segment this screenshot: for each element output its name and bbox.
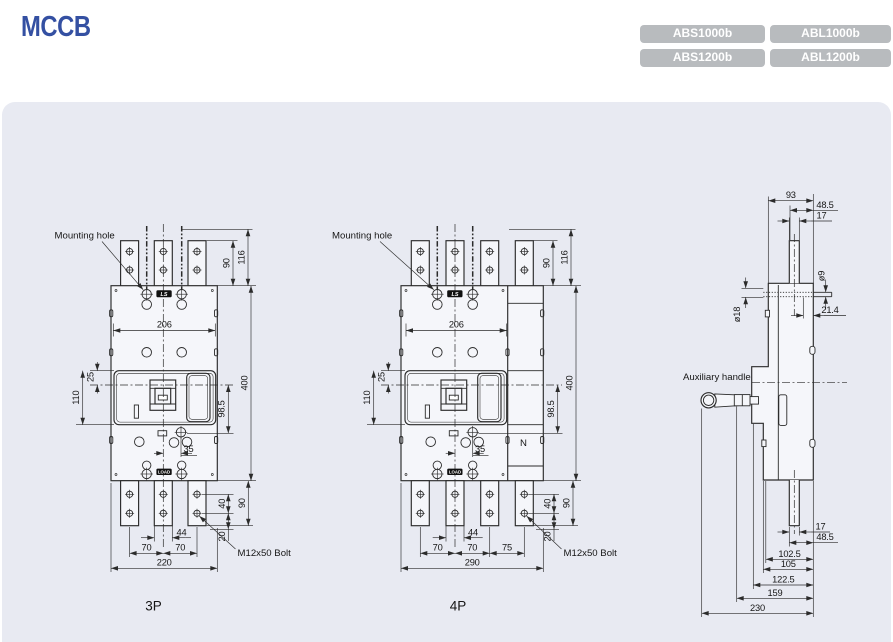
load-badge-3p: LOAD (156, 469, 171, 475)
neutral-label: N (520, 438, 527, 449)
dim-35-3p: 35 (184, 444, 194, 454)
brand-label-3p: LS (161, 292, 168, 298)
breaker-body-side (752, 283, 814, 480)
dim-35-4p: 35 (475, 444, 485, 454)
dim-206-4p: 206 (449, 319, 464, 329)
front-3p-drawing: LS LOAD 206 90 116 400 25 (55, 224, 292, 614)
terminal-bar-top (789, 241, 799, 284)
dim-206-3p: 206 (157, 319, 172, 329)
terminals-bottom-3p (121, 481, 206, 526)
dim-400-4p: 400 (565, 376, 575, 391)
side-view-drawing: Auxiliary handle 93 48.5 17 ø9 ø18 (683, 190, 847, 617)
dim-159-side: 159 (768, 588, 783, 598)
dim-70a-4p: 70 (433, 543, 443, 553)
dim-25-4p: 25 (377, 372, 387, 382)
dimension-drawings: LS LOAD 206 90 116 400 25 (0, 0, 893, 642)
dim-90-top-4p: 90 (542, 258, 552, 268)
dim-98-3p: 98.5 (217, 400, 227, 417)
dim-17-top-side: 17 (817, 211, 827, 221)
brand-badge-4p: LS (447, 290, 462, 298)
dim-220-3p: 220 (157, 558, 172, 568)
load-badge-4p: LOAD (447, 469, 462, 475)
dim-93-side: 93 (786, 190, 796, 200)
dim-116-3p: 116 (237, 250, 247, 264)
handle-panel-4p (405, 371, 507, 425)
handle-panel-3p (114, 371, 216, 425)
dim-122-side: 122.5 (772, 575, 794, 585)
dim-17-bottom-side: 17 (816, 522, 826, 532)
caption-4p: 4P (450, 599, 467, 614)
dim-105-side: 105 (781, 559, 796, 569)
dim-98-4p: 98.5 (546, 400, 556, 417)
caption-3p: 3P (145, 599, 162, 614)
bolt-label-3p: M12x50 Bolt (238, 548, 292, 559)
dim-44-3p: 44 (177, 527, 187, 537)
bolt-label-4p: M12x50 Bolt (564, 548, 618, 559)
dim-40-4p: 40 (543, 499, 553, 509)
dim-40-3p: 40 (217, 499, 227, 509)
mounting-hole-label-4p: Mounting hole (332, 231, 392, 242)
front-4p-drawing: N (332, 224, 617, 614)
dim-110-3p: 110 (71, 391, 81, 405)
load-label-4p: LOAD (449, 470, 461, 475)
auxiliary-handle-label: Auxiliary handle (683, 372, 751, 383)
dim-230-side: 230 (750, 603, 765, 613)
brand-badge-3p: LS (156, 290, 171, 298)
dim-102-side: 102.5 (778, 549, 800, 559)
dim-400-3p: 400 (240, 376, 250, 391)
dim-44-4p: 44 (468, 527, 478, 537)
dim-70b-3p: 70 (175, 543, 185, 553)
dim-116-4p: 116 (560, 250, 570, 264)
mounting-hole-label-3p: Mounting hole (55, 231, 115, 242)
dim-phi9-side: ø9 (817, 271, 827, 281)
load-label-3p: LOAD (158, 470, 170, 475)
dim-21-side: 21.4 (821, 305, 838, 315)
dim-25-3p: 25 (86, 372, 96, 382)
dim-70b-4p: 70 (467, 543, 477, 553)
dim-110-4p: 110 (362, 391, 372, 405)
terminals-bottom-4p (411, 481, 533, 526)
dim-90-top-3p: 90 (222, 258, 232, 268)
catalog-page: { "header": { "title": "MCCB" }, "models… (0, 0, 893, 642)
dim-90-bottom-4p: 90 (562, 498, 572, 508)
dim-48-bottom-side: 48.5 (816, 532, 833, 542)
dim-48-top-side: 48.5 (816, 200, 833, 210)
dim-75-4p: 75 (502, 543, 512, 553)
dim-290-4p: 290 (465, 558, 480, 568)
dim-90-bottom-3p: 90 (237, 498, 247, 508)
brand-label-4p: LS (452, 292, 459, 298)
dim-20-4p: 20 (543, 532, 553, 542)
dim-70a-3p: 70 (142, 543, 152, 553)
dim-phi18-side: ø18 (732, 307, 742, 322)
